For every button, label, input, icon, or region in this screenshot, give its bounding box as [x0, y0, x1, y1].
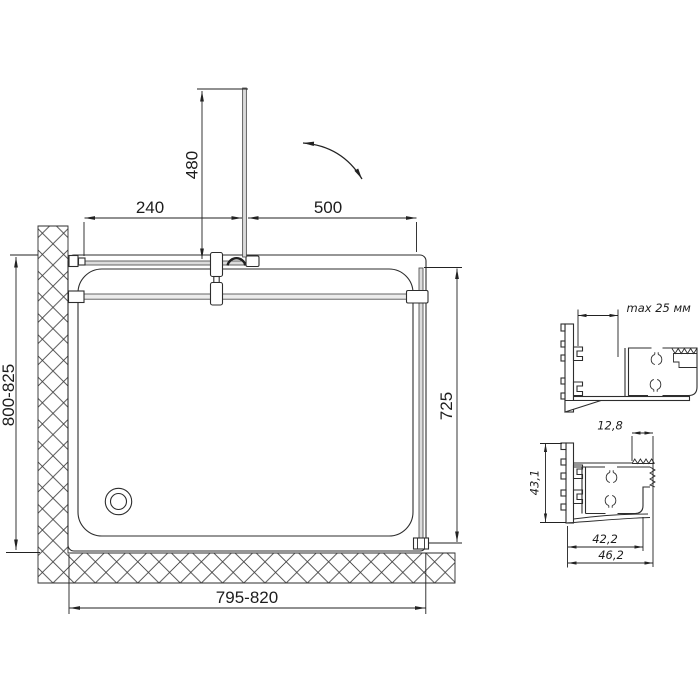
- plan-view: 480 240 500 800-825: [0, 88, 462, 614]
- dim-46-2: 46,2: [568, 548, 653, 565]
- dim-label-240: 240: [136, 198, 164, 217]
- wall-bracket-glass-clamp: [79, 258, 86, 265]
- lower-wall-profile: [561, 443, 650, 523]
- detail-section-lower: 12,8 43,1 42,2 46,2: [528, 419, 656, 568]
- support-bar: [84, 294, 418, 299]
- drawing-canvas: 480 240 500 800-825: [0, 0, 700, 700]
- side-glass-bracket: [407, 291, 429, 304]
- dim-240: 240: [84, 198, 242, 256]
- wall-bracket-bar: [69, 291, 85, 303]
- wall-bracket-glass: [69, 256, 78, 267]
- dim-label-max-25: max 25 мм: [627, 301, 692, 315]
- dim-label-725: 725: [437, 392, 456, 420]
- dim-label-480: 480: [183, 151, 202, 179]
- side-glass: [419, 268, 423, 548]
- screw-icon: [605, 495, 616, 507]
- upper-glass-profile: [625, 348, 697, 396]
- dim-label-46-2: 46,2: [598, 548, 624, 562]
- dim-480: 480: [183, 89, 249, 259]
- side-glass-foot: [414, 538, 429, 549]
- dim-43-1: 43,1: [528, 444, 567, 523]
- dim-max-25: max 25 мм: [578, 301, 691, 357]
- dim-label-43-1: 43,1: [528, 470, 542, 496]
- dim-label-800-825: 800-825: [0, 364, 18, 426]
- door-panel-open: [243, 88, 247, 257]
- gasket-serration: [672, 349, 697, 354]
- gasket-serration: [632, 459, 655, 464]
- door-swing-arc: [303, 142, 362, 179]
- dim-label-42-2: 42,2: [592, 532, 618, 546]
- dim-label-500: 500: [314, 198, 342, 217]
- lower-glass-profile: [574, 459, 656, 514]
- dim-800-825: 800-825: [0, 255, 40, 553]
- dim-label-12-8: 12,8: [597, 419, 623, 433]
- screw-icon: [650, 379, 661, 391]
- dim-label-795-820: 795-820: [216, 588, 278, 607]
- gasket-serration: [650, 467, 655, 487]
- screw-icon: [651, 352, 662, 364]
- dim-725: 725: [424, 268, 462, 544]
- screw-icon: [606, 470, 617, 482]
- detail-section-upper: max 25 мм: [561, 301, 697, 412]
- dim-500: 500: [248, 198, 417, 252]
